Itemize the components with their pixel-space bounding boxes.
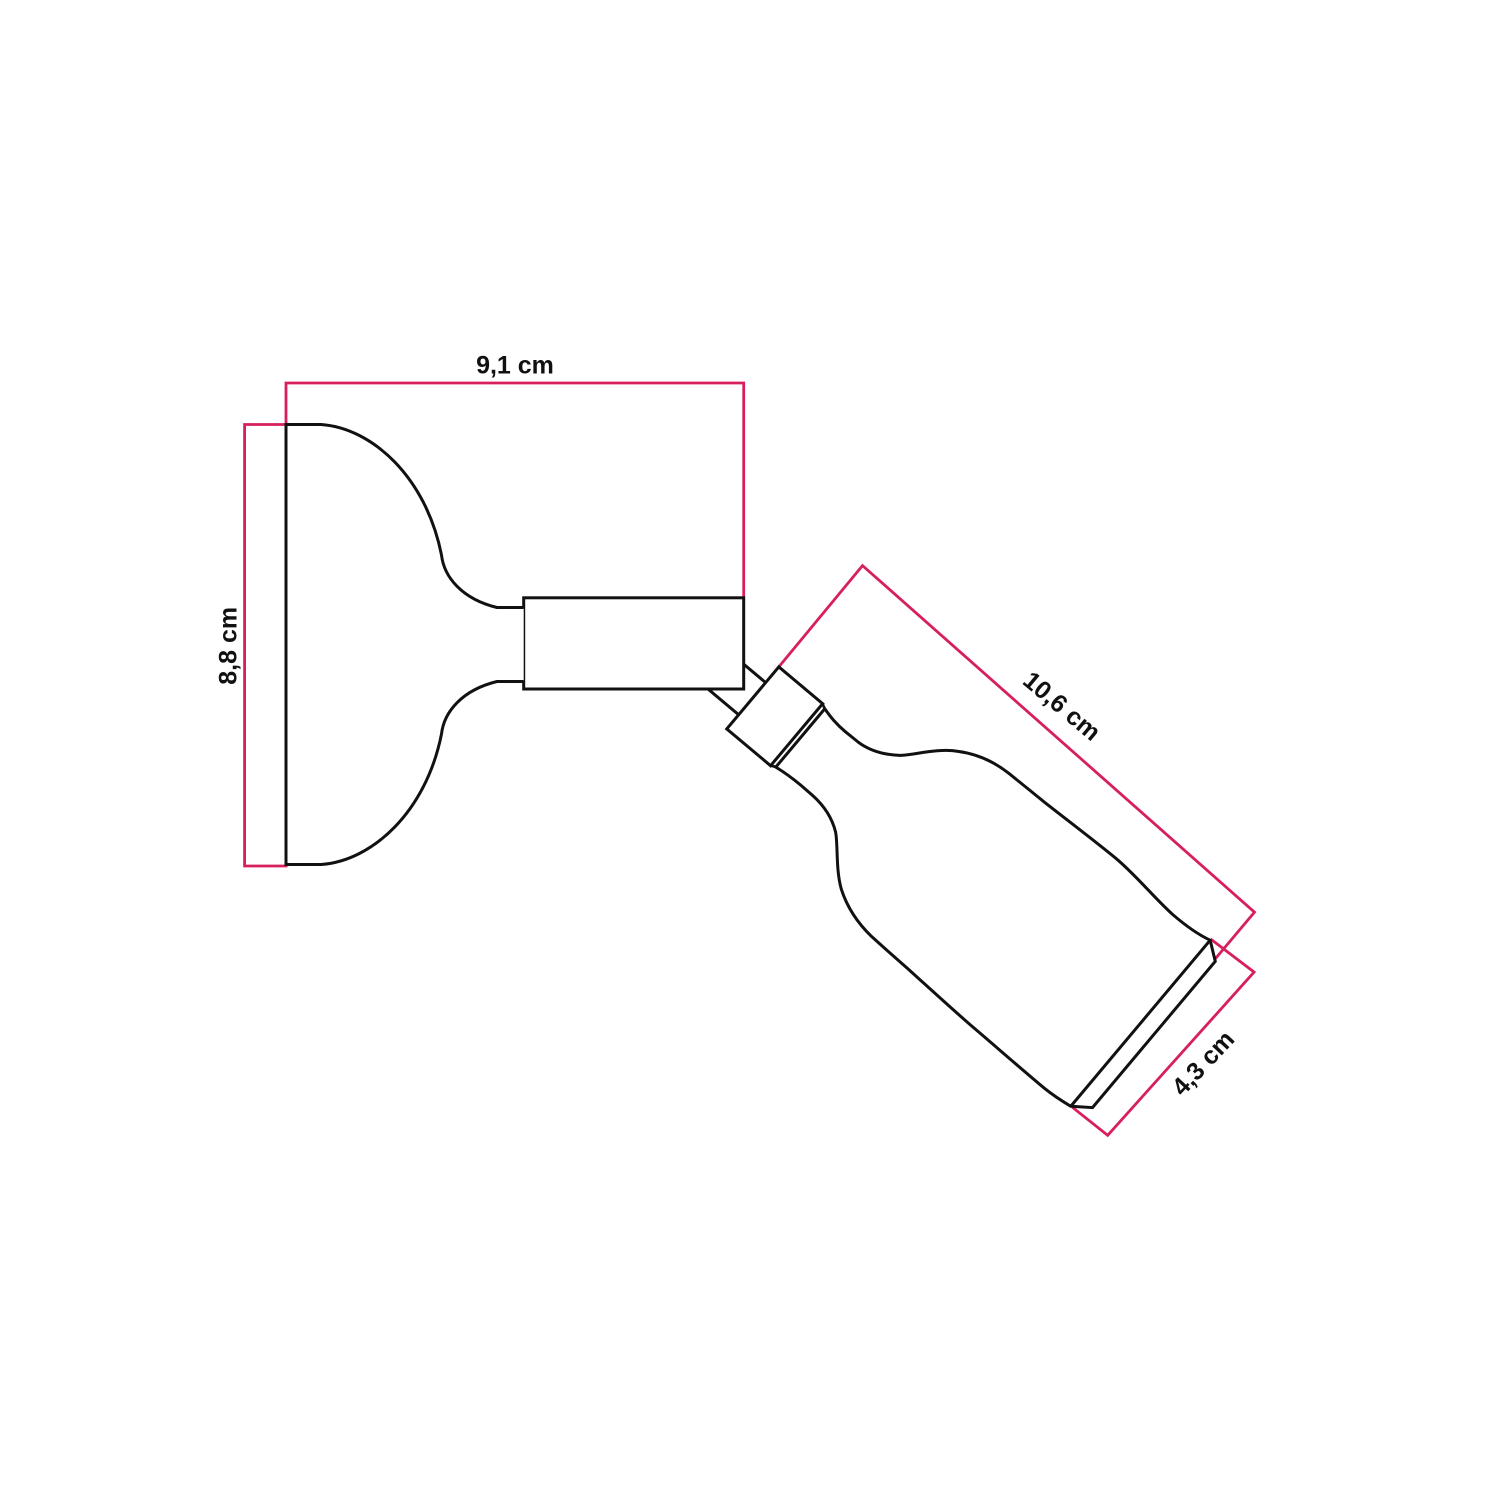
svg-text:8,8 cm: 8,8 cm (215, 607, 243, 685)
svg-text:9,1 cm: 9,1 cm (476, 352, 554, 380)
